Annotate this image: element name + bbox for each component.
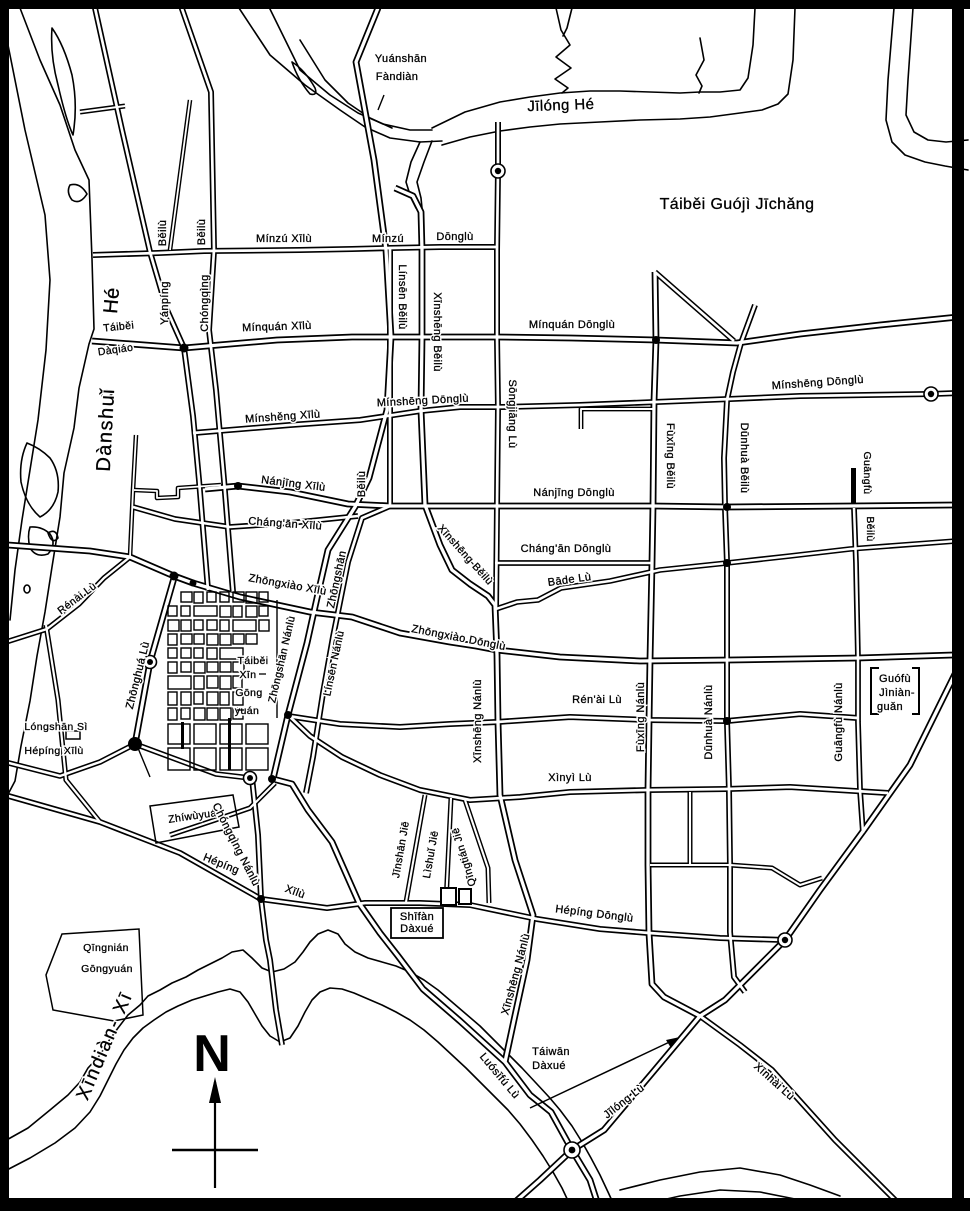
svg-text:Táiběi Guójì Jīchǎng: Táiběi Guójì Jīchǎng <box>660 196 815 213</box>
svg-text:Xīnshēng Běilù: Xīnshēng Běilù <box>431 292 443 372</box>
svg-text:Cháng'ān Dōnglù: Cháng'ān Dōnglù <box>521 543 612 555</box>
svg-text:Táiwān: Táiwān <box>532 1046 570 1058</box>
svg-text:Běilù: Běilù <box>157 220 169 246</box>
svg-text:Qīngnián: Qīngnián <box>83 942 129 954</box>
svg-text:Dūnhuà Nánlù: Dūnhuà Nánlù <box>703 684 715 759</box>
svg-text:guǎn: guǎn <box>877 701 903 713</box>
svg-text:Yánpíng: Yánpíng <box>159 281 171 325</box>
svg-text:Hé: Hé <box>100 286 124 314</box>
svg-text:Jīlóng Hé: Jīlóng Hé <box>527 96 595 115</box>
svg-text:yuán: yuán <box>235 705 259 717</box>
svg-text:Gōng: Gōng <box>235 687 262 699</box>
svg-text:Mínzú: Mínzú <box>372 233 404 245</box>
svg-text:Sōngjiāng Lù: Sōngjiāng Lù <box>506 379 518 448</box>
svg-text:Mínquán Dōnglù: Mínquán Dōnglù <box>529 319 615 331</box>
svg-text:Lóngshān Sì: Lóngshān Sì <box>24 721 87 733</box>
svg-text:Xīnshēng Nánlù: Xīnshēng Nánlù <box>472 679 484 763</box>
svg-text:Dōnglù: Dōnglù <box>436 231 473 243</box>
svg-text:Guófù: Guófù <box>879 673 911 685</box>
svg-text:Guāngfù: Guāngfù <box>861 451 873 494</box>
svg-text:Rén'ài Lù: Rén'ài Lù <box>572 694 622 706</box>
svg-text:N: N <box>193 1025 231 1083</box>
svg-text:Mínzú Xīlù: Mínzú Xīlù <box>256 233 312 245</box>
svg-text:Dàxué: Dàxué <box>532 1060 566 1072</box>
svg-text:Hépíng Xīlù: Hépíng Xīlù <box>24 745 83 757</box>
svg-text:Guāngfù Nánlù: Guāngfù Nánlù <box>833 682 845 761</box>
svg-text:Xìnyì Lù: Xìnyì Lù <box>548 772 592 784</box>
svg-text:Běilù: Běilù <box>356 471 368 497</box>
svg-text:Shīfàn: Shīfàn <box>400 911 434 923</box>
svg-text:Dànshuǐ: Dànshuǐ <box>93 387 119 472</box>
svg-text:Mínquán Xīlù: Mínquán Xīlù <box>242 320 312 334</box>
svg-text:Jìniàn-: Jìniàn- <box>879 687 915 699</box>
svg-text:Fàndiàn: Fàndiàn <box>376 71 419 83</box>
svg-text:Běilù: Běilù <box>196 219 208 245</box>
svg-text:Táiběi: Táiběi <box>238 655 269 667</box>
svg-text:Dàxué: Dàxué <box>400 923 434 935</box>
svg-text:Línsēn Běilù: Línsēn Běilù <box>396 264 408 329</box>
svg-text:Dūnhuà Běilù: Dūnhuà Běilù <box>738 423 750 494</box>
svg-text:Chóngqìng: Chóngqìng <box>199 274 211 331</box>
svg-text:Fùxīng Běilù: Fùxīng Běilù <box>664 423 676 489</box>
svg-text:Běilù: Běilù <box>864 516 876 541</box>
svg-text:Gōngyuán: Gōngyuán <box>81 963 133 975</box>
svg-text:Fùxīng Nánlù: Fùxīng Nánlù <box>635 682 647 752</box>
svg-text:Yuánshān: Yuánshān <box>375 53 427 65</box>
svg-text:Xīn: Xīn <box>240 669 257 681</box>
svg-text:Nánjīng Dōnglù: Nánjīng Dōnglù <box>533 487 614 499</box>
